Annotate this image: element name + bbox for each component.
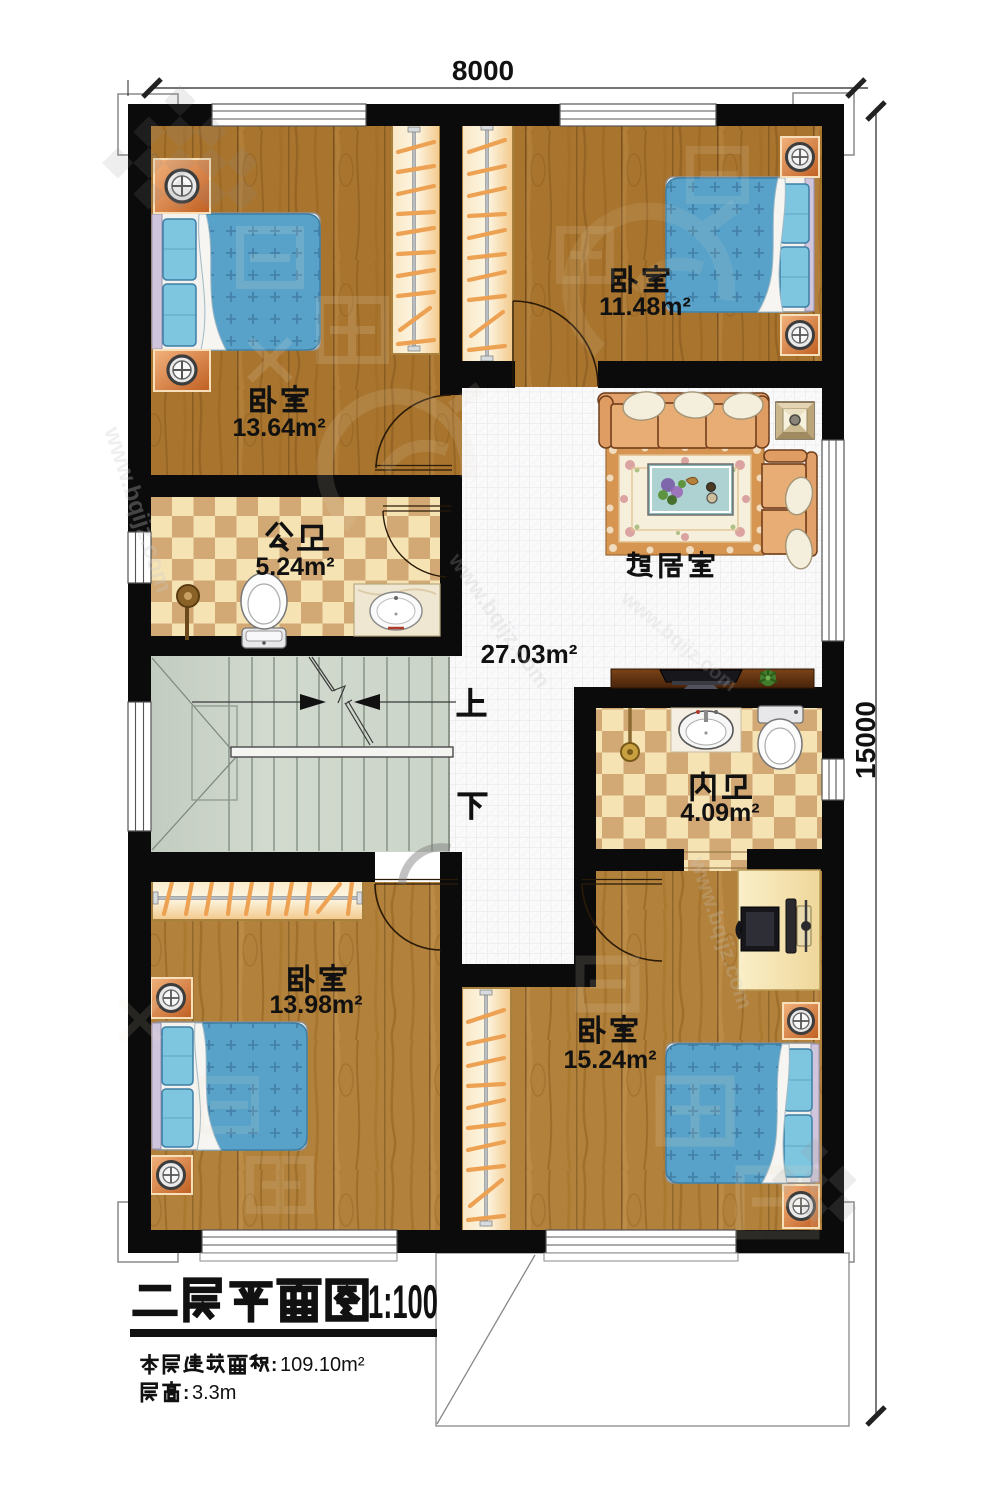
svg-text:5.24m²: 5.24m² bbox=[255, 553, 334, 581]
svg-text:11.48m²: 11.48m² bbox=[599, 293, 691, 321]
svg-text:8000: 8000 bbox=[452, 55, 514, 86]
svg-text:1:100: 1:100 bbox=[368, 1275, 438, 1328]
svg-text::: : bbox=[271, 1355, 277, 1376]
svg-text:4.09m²: 4.09m² bbox=[680, 799, 759, 827]
svg-text::: : bbox=[183, 1383, 189, 1404]
svg-text:13.98m²: 13.98m² bbox=[269, 991, 362, 1019]
svg-text:15000: 15000 bbox=[850, 701, 881, 779]
svg-text:3.3m: 3.3m bbox=[192, 1382, 236, 1404]
svg-text:109.10m²: 109.10m² bbox=[280, 1354, 365, 1376]
svg-text:13.64m²: 13.64m² bbox=[232, 414, 325, 442]
svg-text:15.24m²: 15.24m² bbox=[563, 1046, 656, 1074]
